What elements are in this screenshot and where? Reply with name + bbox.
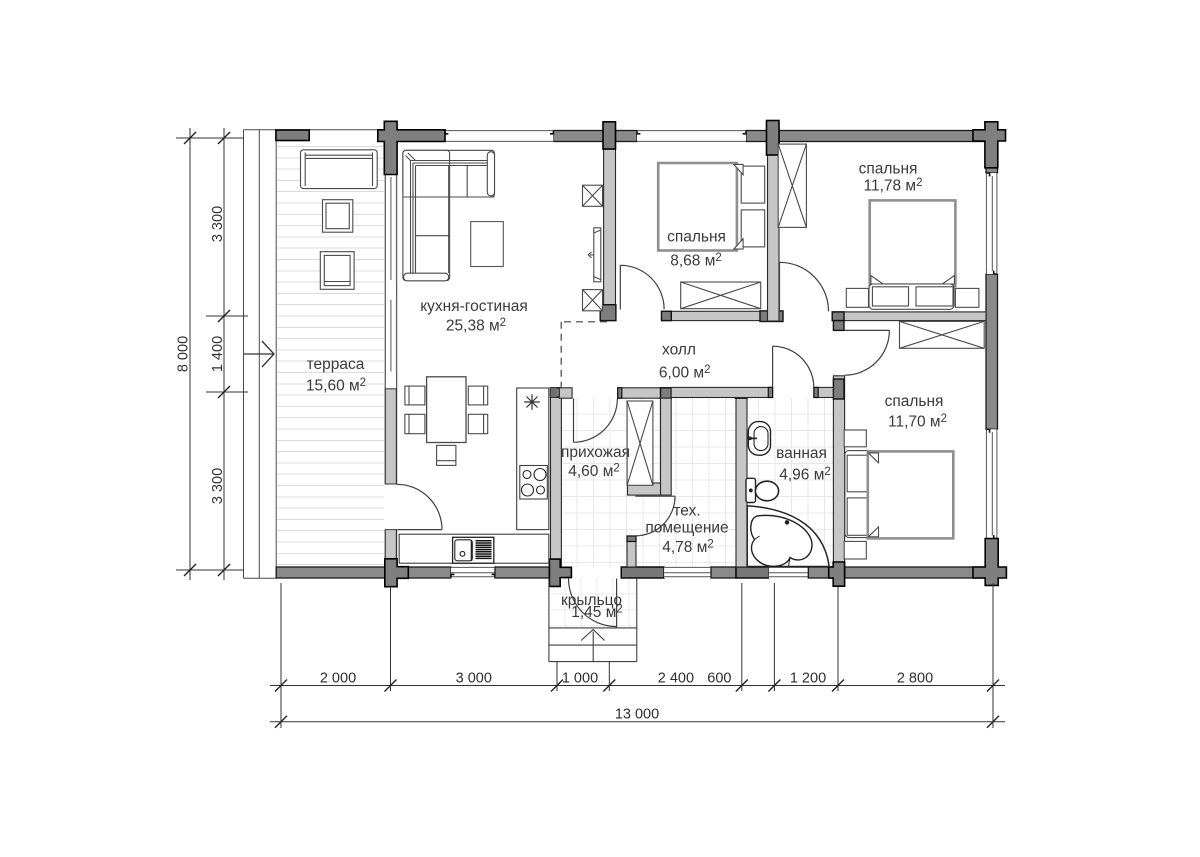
svg-text:холл: холл [662,342,696,359]
svg-text:2 800: 2 800 [897,671,933,687]
svg-text:1 200: 1 200 [790,671,826,687]
svg-text:тех.: тех. [673,503,700,520]
svg-text:ванная: ванная [776,445,827,462]
svg-text:помещение: помещение [645,520,728,537]
svg-text:3 000: 3 000 [456,671,492,687]
svg-text:1 400: 1 400 [210,336,226,372]
svg-text:1 000: 1 000 [562,671,598,687]
svg-text:15,60 м2: 15,60 м2 [306,377,366,395]
svg-text:2 400: 2 400 [658,671,694,687]
svg-text:терраса: терраса [307,356,365,373]
svg-text:13 000: 13 000 [615,707,659,723]
svg-text:25,38 м2: 25,38 м2 [446,317,506,335]
svg-text:8,68 м2: 8,68 м2 [670,252,722,270]
svg-text:4,96 м2: 4,96 м2 [779,466,831,484]
svg-text:3 300: 3 300 [210,206,226,242]
svg-text:11,70 м2: 11,70 м2 [888,413,947,431]
svg-text:600: 600 [707,671,731,687]
svg-text:прихожая: прихожая [561,444,630,461]
svg-text:6,00 м2: 6,00 м2 [659,364,711,382]
svg-text:4,78 м2: 4,78 м2 [662,539,714,557]
svg-text:спальня: спальня [667,229,726,246]
svg-text:2 000: 2 000 [320,671,356,687]
svg-text:кухня-гостиная: кухня-гостиная [420,298,528,315]
svg-text:спальня: спальня [885,393,944,410]
svg-text:11,78 м2: 11,78 м2 [863,177,922,195]
svg-text:спальня: спальня [859,161,918,178]
svg-text:1,45 м2: 1,45 м2 [571,604,623,622]
svg-text:3 300: 3 300 [210,468,226,504]
svg-text:4,60 м2: 4,60 м2 [568,463,620,481]
svg-text:8 000: 8 000 [176,336,192,372]
